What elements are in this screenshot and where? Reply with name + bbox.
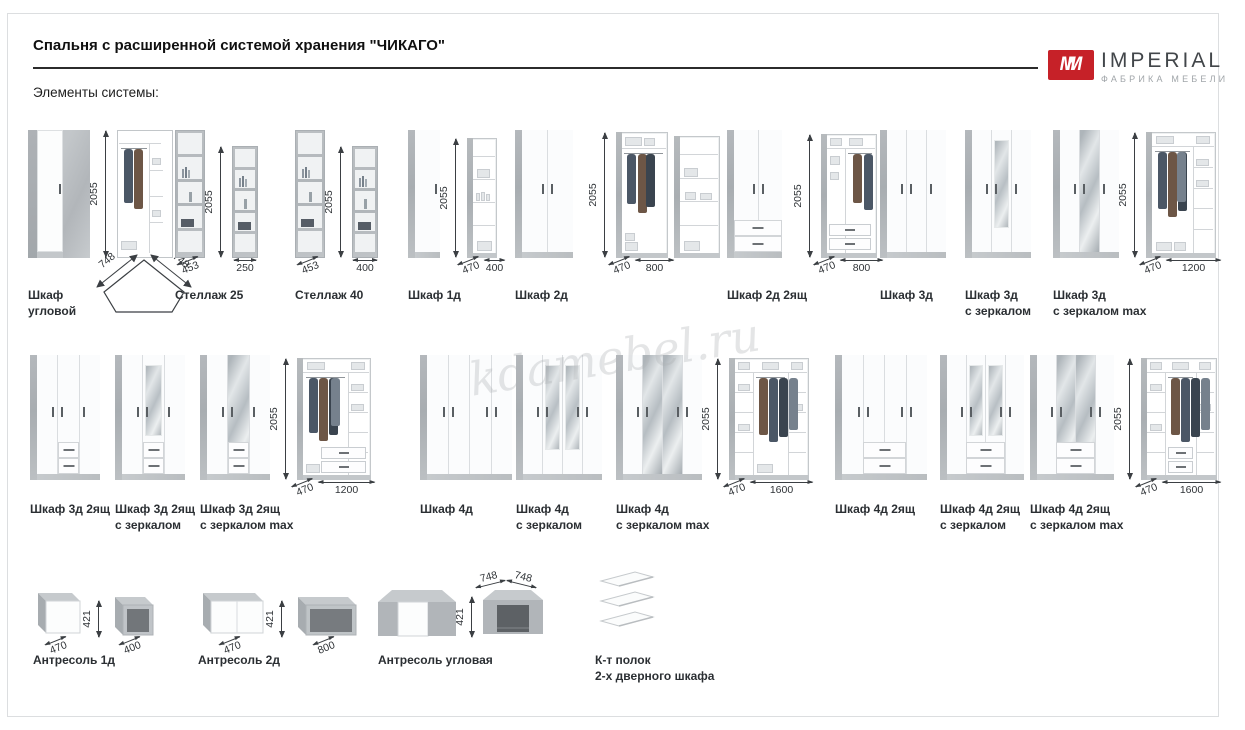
wardrobe-closed-view bbox=[408, 130, 440, 258]
wardrobe-door bbox=[887, 130, 906, 252]
dim-width-arrow: 400 bbox=[353, 260, 377, 274]
product-view bbox=[880, 130, 946, 258]
wardrobe-closed-view bbox=[115, 355, 185, 480]
product-view bbox=[515, 130, 573, 258]
wardrobe-door bbox=[1011, 130, 1031, 252]
shelf-cell bbox=[178, 157, 202, 178]
door-handle bbox=[1099, 407, 1101, 417]
dim-depth-arrow: 453 bbox=[177, 256, 203, 277]
wardrobe-door bbox=[906, 130, 926, 252]
drawer bbox=[58, 442, 79, 458]
wardrobe-open-view bbox=[467, 138, 497, 258]
wardrobe-door bbox=[448, 355, 470, 474]
door-handle bbox=[146, 407, 148, 417]
wardrobe-open-view bbox=[729, 358, 809, 480]
product-card: К-т полок2-х дверного шкафа bbox=[595, 568, 659, 630]
dim-bottom: 470 bbox=[47, 640, 69, 654]
drawer bbox=[228, 458, 249, 474]
product-view: 250 bbox=[232, 146, 258, 258]
door-handle bbox=[495, 407, 497, 417]
svg-text:748: 748 bbox=[97, 250, 118, 270]
dim-height-arrow: 421 bbox=[462, 596, 477, 638]
product-view: 453 bbox=[295, 130, 325, 258]
door-handle bbox=[486, 407, 488, 417]
wardrobe-door bbox=[523, 355, 542, 474]
drawer bbox=[228, 442, 249, 458]
product-view bbox=[420, 355, 512, 480]
dim-top-arrow: 748 bbox=[473, 568, 505, 589]
brand-text: IMPERIAL ФАБРИКА МЕБЕЛИ bbox=[1101, 50, 1228, 84]
wardrobe-door bbox=[164, 355, 185, 474]
dim-bottom: 470800 bbox=[816, 260, 883, 274]
wardrobe-closed-view bbox=[516, 355, 602, 480]
wardrobe-closed-view bbox=[420, 355, 512, 480]
shelf-cell bbox=[298, 133, 322, 154]
dim-bottom: 453 bbox=[299, 260, 321, 274]
brand-tagline: ФАБРИКА МЕБЕЛИ bbox=[1101, 74, 1228, 84]
product-view bbox=[595, 568, 659, 630]
wardrobe-door bbox=[427, 355, 448, 474]
brand-logo: MM IMPERIAL ФАБРИКА МЕБЕЛИ bbox=[1048, 50, 1228, 84]
page-subtitle: Элементы системы: bbox=[33, 85, 159, 100]
shelf-cell bbox=[355, 191, 375, 209]
dim-height-arrow: 2055 bbox=[708, 358, 723, 480]
page-title: Спальня с расширенной системой хранения … bbox=[33, 37, 445, 54]
acc-view bbox=[378, 588, 456, 638]
wardrobe-door bbox=[469, 355, 491, 474]
product-card: 2055470800 Шкаф 2д 2ящ bbox=[727, 130, 877, 258]
corner-wardrobe-open-view bbox=[117, 130, 173, 258]
product-label: Шкаф 4дс зеркалом max bbox=[616, 502, 709, 533]
dim-depth-arrow: 470 bbox=[292, 478, 318, 499]
drawer bbox=[966, 458, 1004, 474]
shelf-cell bbox=[298, 206, 322, 227]
aco-view bbox=[483, 588, 543, 638]
product-view bbox=[1030, 355, 1114, 480]
door-handle bbox=[686, 407, 688, 417]
door-handle bbox=[901, 184, 903, 194]
product-card: 20554701200 Шкаф 3д 2ящс зеркалом max bbox=[200, 355, 371, 480]
product-label: Шкаф 4дс зеркалом bbox=[516, 502, 582, 533]
wardrobe-door bbox=[926, 130, 946, 252]
dim-depth-arrow: 400 bbox=[119, 636, 145, 657]
product-view bbox=[940, 355, 1024, 480]
wardrobe-closed-view bbox=[1030, 355, 1114, 480]
dim-height-arrow: 2055 bbox=[331, 146, 346, 258]
wardrobe-open-view bbox=[1146, 132, 1216, 258]
product-label: Антресоль 1д bbox=[33, 653, 115, 669]
product-view bbox=[378, 588, 456, 638]
drawer bbox=[734, 236, 782, 252]
wardrobe-door bbox=[682, 355, 702, 474]
wardrobe-closed-view bbox=[965, 130, 1031, 258]
door-handle bbox=[867, 407, 869, 417]
drawer bbox=[966, 442, 1004, 458]
brand-name: IMPERIAL bbox=[1101, 50, 1228, 71]
shelf-cell bbox=[178, 231, 202, 252]
door-handle bbox=[61, 407, 63, 417]
dim-bottom: 4701200 bbox=[1142, 260, 1221, 274]
product-label: Шкаф 3д bbox=[880, 288, 933, 304]
dim-height-arrow: 2055 bbox=[1125, 132, 1140, 258]
wardrobe-door bbox=[972, 130, 991, 252]
wardrobe-door bbox=[562, 355, 582, 474]
door-handle bbox=[586, 407, 588, 417]
an2o-view bbox=[293, 596, 359, 638]
shelf-cell bbox=[355, 170, 375, 188]
door-handle bbox=[1090, 407, 1092, 417]
drawer bbox=[1056, 442, 1094, 458]
door-handle bbox=[1051, 407, 1053, 417]
product-label: Шкаф 3дс зеркалом max bbox=[1053, 288, 1146, 319]
door-handle bbox=[753, 184, 755, 194]
door-handle bbox=[222, 407, 224, 417]
wardrobe-door bbox=[249, 355, 270, 474]
product-card: 4532055400 Стеллаж 40 bbox=[295, 130, 378, 258]
dim-depth-arrow: 453 bbox=[297, 256, 323, 277]
product-label: Шкаф 3дс зеркалом bbox=[965, 288, 1031, 319]
wardrobe-door bbox=[582, 355, 602, 474]
wardrobe-closed-view bbox=[30, 355, 100, 480]
an1o-view bbox=[110, 596, 154, 638]
mirror-panel bbox=[988, 365, 1003, 436]
product-view bbox=[200, 355, 270, 480]
wardrobe-door bbox=[37, 355, 57, 474]
product-view: 4701600 bbox=[1141, 358, 1217, 480]
door-handle bbox=[253, 407, 255, 417]
door-handle bbox=[137, 407, 139, 417]
dim-bottom: 470400 bbox=[460, 260, 505, 274]
door-handle bbox=[986, 184, 988, 194]
product-view: 400 bbox=[110, 596, 154, 638]
product-card: 470421400 Антресоль 1д bbox=[33, 592, 154, 638]
door-handle bbox=[542, 184, 544, 194]
shelves-kit-view bbox=[595, 568, 659, 630]
wardrobe-open-view bbox=[674, 136, 720, 258]
drawer bbox=[58, 458, 79, 474]
wardrobe-door bbox=[842, 355, 863, 474]
product-label: Шкафугловой bbox=[28, 288, 76, 319]
wardrobe-open-view bbox=[821, 134, 877, 258]
dim-bottom: 400 bbox=[353, 260, 377, 274]
shelf-cell bbox=[355, 213, 375, 231]
wardrobe-closed-view bbox=[940, 355, 1024, 480]
wardrobe-closed-view bbox=[835, 355, 927, 480]
door-handle bbox=[231, 407, 233, 417]
product-card: 20554701200 Шкаф 3дс зеркалом max bbox=[1053, 130, 1216, 258]
product-card: Шкаф 4д bbox=[420, 355, 512, 480]
product-label: Шкаф 4д bbox=[420, 502, 473, 518]
product-card: 4532055250 Стеллаж 25 bbox=[175, 130, 258, 258]
dim-width-arrow: 1600 bbox=[751, 482, 813, 496]
dim-top-arrow: 748 bbox=[507, 568, 539, 589]
shelf-cell bbox=[355, 234, 375, 252]
product-card: 2055 Шкафугловой 748 748 bbox=[28, 130, 173, 258]
product-card: 2055470400 Шкаф 1д bbox=[408, 130, 497, 258]
shelf-cell bbox=[298, 231, 322, 252]
wardrobe-drawers bbox=[1056, 442, 1094, 474]
product-view bbox=[1053, 130, 1119, 258]
door-handle bbox=[901, 407, 903, 417]
product-label: Антресоль 2д bbox=[198, 653, 280, 669]
shelf-cell bbox=[235, 234, 255, 252]
door-handle bbox=[910, 407, 912, 417]
product-label: К-т полок2-х дверного шкафа bbox=[595, 653, 714, 684]
title-underline bbox=[33, 67, 1038, 69]
product-view bbox=[965, 130, 1031, 258]
dim-bottom: 453 bbox=[179, 260, 201, 274]
wardrobe-door bbox=[207, 355, 227, 474]
wardrobe-drawers bbox=[228, 442, 249, 474]
wardrobe-door bbox=[623, 355, 642, 474]
dim-height-arrow: 2055 bbox=[800, 134, 815, 258]
wardrobe-door bbox=[642, 355, 662, 474]
dim-height-arrow: 2055 bbox=[96, 130, 111, 258]
door-handle bbox=[551, 184, 553, 194]
drawer bbox=[734, 220, 782, 236]
dim-height-arrow: 2055 bbox=[446, 138, 461, 258]
product-view: 4701600 bbox=[729, 358, 809, 480]
product-card: 20554701600 Шкаф 4дс зеркалом max bbox=[616, 355, 809, 480]
door-handle bbox=[961, 407, 963, 417]
dim-depth-arrow: 800 bbox=[313, 636, 339, 657]
dim-bottom: 800 bbox=[315, 640, 337, 654]
door-handle bbox=[52, 407, 54, 417]
dim-width-arrow: 800 bbox=[841, 260, 883, 274]
product-view: 470 bbox=[198, 592, 266, 638]
product-label: Шкаф 1д bbox=[408, 288, 461, 304]
door-handle bbox=[970, 407, 972, 417]
shelf-cell bbox=[235, 149, 255, 167]
door-handle bbox=[537, 407, 539, 417]
product-label: Стеллаж 40 bbox=[295, 288, 363, 304]
wardrobe-door bbox=[542, 355, 562, 474]
wardrobe-drawers bbox=[143, 442, 164, 474]
monogram-letter: M bbox=[1067, 54, 1083, 76]
product-label: Шкаф 4д 2ящс зеркалом max bbox=[1030, 502, 1123, 533]
door-handle bbox=[577, 407, 579, 417]
wardrobe-drawers bbox=[966, 442, 1004, 474]
product-card: Шкаф 3д bbox=[880, 130, 946, 258]
wardrobe-door bbox=[1099, 130, 1119, 252]
dim-height-arrow: 2055 bbox=[1120, 358, 1135, 480]
door-handle bbox=[1060, 407, 1062, 417]
product-view: 800 bbox=[293, 596, 359, 638]
door-handle bbox=[546, 407, 548, 417]
wardrobe-door bbox=[415, 130, 440, 252]
wardrobe-door bbox=[122, 355, 142, 474]
wardrobe-closed-view bbox=[1053, 130, 1119, 258]
door-handle bbox=[930, 184, 932, 194]
corner-wardrobe-closed-view bbox=[28, 130, 90, 258]
dim-width-arrow: 1200 bbox=[319, 482, 375, 496]
shelf-unit-view bbox=[232, 146, 258, 258]
mirror-panel bbox=[145, 365, 161, 436]
product-card: Шкаф 4д 2ящс зеркалом bbox=[940, 355, 1024, 480]
product-card: 421 748 748 Антресоль угловая bbox=[378, 588, 543, 638]
product-label: Шкаф 3д 2ящс зеркалом max bbox=[200, 502, 293, 533]
dim-bottom: 4701600 bbox=[726, 482, 813, 496]
wardrobe-door bbox=[547, 130, 573, 252]
dim-height-arrow: 421 bbox=[89, 600, 104, 638]
wardrobe-closed-view bbox=[515, 130, 573, 258]
product-label: Шкаф 2д 2ящ bbox=[727, 288, 807, 304]
wardrobe-door bbox=[662, 355, 682, 474]
product-label: Шкаф 4д 2ящс зеркалом bbox=[940, 502, 1020, 533]
dim-depth-arrow: 470 bbox=[814, 256, 840, 277]
door-handle bbox=[762, 184, 764, 194]
door-handle bbox=[443, 407, 445, 417]
product-view: 470800 bbox=[616, 132, 668, 258]
door-handle bbox=[83, 407, 85, 417]
product-card: 2055470800 Шкаф 2д bbox=[515, 130, 720, 258]
brand-monogram-icon: MM bbox=[1048, 50, 1094, 80]
product-card: 470421800 Антресоль 2д bbox=[198, 592, 359, 638]
shelf-cell bbox=[178, 206, 202, 227]
wardrobe-drawers bbox=[863, 442, 905, 474]
dim-depth-arrow: 470 bbox=[458, 256, 484, 277]
dim-bottom: 470800 bbox=[611, 260, 674, 274]
drawer bbox=[863, 458, 905, 474]
shelf-cell bbox=[235, 170, 255, 188]
shelf-cell bbox=[235, 213, 255, 231]
wardrobe-door bbox=[1060, 130, 1079, 252]
wardrobe-closed-view bbox=[880, 130, 946, 258]
dim-height-arrow: 2055 bbox=[211, 146, 226, 258]
shelf-cell bbox=[178, 182, 202, 203]
an2c-view bbox=[198, 592, 266, 638]
wardrobe-closed-view bbox=[200, 355, 270, 480]
door-handle bbox=[646, 407, 648, 417]
product-view bbox=[516, 355, 602, 480]
shelf-cell bbox=[298, 182, 322, 203]
drawer bbox=[143, 442, 164, 458]
product-card: Шкаф 4д 2ящ bbox=[835, 355, 927, 480]
product-view bbox=[117, 130, 173, 258]
wardrobe-open-view bbox=[297, 358, 371, 480]
shelf-cell bbox=[178, 133, 202, 154]
product-card: Шкаф 3дс зеркалом bbox=[965, 130, 1031, 258]
dim-width-arrow: 400 bbox=[485, 260, 505, 274]
product-view: 748 748 bbox=[483, 588, 543, 638]
product-view: 4701200 bbox=[297, 358, 371, 480]
product-card: 20554701600 Шкаф 4д 2ящс зеркалом max bbox=[1030, 355, 1217, 480]
dim-height-arrow: 2055 bbox=[595, 132, 610, 258]
wardrobe-door bbox=[1005, 355, 1025, 474]
shelf-cell bbox=[235, 191, 255, 209]
door-handle bbox=[1103, 184, 1105, 194]
dim-width-arrow: 800 bbox=[636, 260, 674, 274]
dim-top: 748 748 bbox=[474, 571, 538, 585]
wardrobe-door bbox=[522, 130, 547, 252]
product-view bbox=[616, 355, 702, 480]
wardrobe-door bbox=[79, 355, 100, 474]
door-handle bbox=[1083, 184, 1085, 194]
wardrobe-open-view bbox=[1141, 358, 1217, 480]
dim-height-arrow: 421 bbox=[272, 600, 287, 638]
dim-width-arrow: 1600 bbox=[1163, 482, 1221, 496]
door-handle bbox=[435, 184, 437, 194]
product-view bbox=[674, 136, 720, 258]
drawer bbox=[1056, 458, 1094, 474]
dim-depth-arrow: 470 bbox=[724, 478, 750, 499]
wardrobe-door bbox=[947, 355, 966, 474]
product-card: Шкаф 3д 2ящс зеркалом bbox=[115, 355, 185, 480]
product-view: 470 bbox=[33, 592, 83, 638]
product-label: Шкаф 2д bbox=[515, 288, 568, 304]
wardrobe-drawers bbox=[58, 442, 79, 474]
door-handle bbox=[637, 407, 639, 417]
door-handle bbox=[452, 407, 454, 417]
product-label: Стеллаж 25 bbox=[175, 288, 243, 304]
wardrobe-door bbox=[491, 355, 513, 474]
dim-bottom: 4701200 bbox=[294, 482, 375, 496]
drawer bbox=[863, 442, 905, 458]
product-label: Шкаф 4д 2ящ bbox=[835, 502, 915, 518]
shelf-cell bbox=[298, 157, 322, 178]
shelf-cell bbox=[355, 149, 375, 167]
door-handle bbox=[995, 184, 997, 194]
door-handle bbox=[1000, 407, 1002, 417]
catalog-page: { "page": { "title": "Спальня с расширен… bbox=[0, 0, 1245, 730]
product-view: 470400 bbox=[467, 138, 497, 258]
product-label: Антресоль угловая bbox=[378, 653, 493, 669]
door-handle bbox=[1074, 184, 1076, 194]
product-view: 400 bbox=[352, 146, 378, 258]
wardrobe-closed-view bbox=[616, 355, 702, 480]
dim-bottom: 250 bbox=[234, 260, 256, 274]
product-view: 470800 bbox=[821, 134, 877, 258]
product-card: Шкаф 3д 2ящ bbox=[30, 355, 100, 480]
shelf-unit-view bbox=[175, 130, 205, 258]
product-card: Шкаф 4дс зеркалом bbox=[516, 355, 602, 480]
dim-bottom: 400 bbox=[121, 640, 143, 654]
product-view bbox=[115, 355, 185, 480]
door-handle bbox=[677, 407, 679, 417]
dim-height-arrow: 2055 bbox=[276, 358, 291, 480]
product-view bbox=[408, 130, 440, 258]
product-view bbox=[727, 130, 782, 258]
dim-width-arrow: 1200 bbox=[1167, 260, 1221, 274]
product-view bbox=[835, 355, 927, 480]
door-handle bbox=[1015, 184, 1017, 194]
dim-depth-arrow: 470 bbox=[1136, 478, 1162, 499]
shelf-unit-view bbox=[295, 130, 325, 258]
drawer bbox=[143, 458, 164, 474]
wardrobe-open-view bbox=[616, 132, 668, 258]
wardrobe-drawers bbox=[734, 220, 782, 252]
product-view: 4701200 bbox=[1146, 132, 1216, 258]
door-handle bbox=[910, 184, 912, 194]
door-handle bbox=[858, 407, 860, 417]
dim-depth-arrow: 470 bbox=[609, 256, 635, 277]
shelf-unit-view bbox=[352, 146, 378, 258]
wardrobe-closed-view bbox=[727, 130, 782, 258]
door-handle bbox=[1009, 407, 1011, 417]
an1c-view bbox=[33, 592, 83, 638]
dim-width-arrow: 250 bbox=[234, 260, 256, 274]
product-view bbox=[28, 130, 90, 258]
product-label: Шкаф 3д 2ящс зеркалом bbox=[115, 502, 195, 533]
wardrobe-door bbox=[906, 355, 928, 474]
door-handle bbox=[168, 407, 170, 417]
dim-bottom: 4701600 bbox=[1138, 482, 1221, 496]
dim-bottom: 470 bbox=[221, 640, 243, 654]
product-label: Шкаф 3д 2ящ bbox=[30, 502, 110, 518]
product-view: 453 bbox=[175, 130, 205, 258]
wardrobe-door bbox=[1079, 130, 1099, 252]
wardrobe-door bbox=[991, 130, 1011, 252]
